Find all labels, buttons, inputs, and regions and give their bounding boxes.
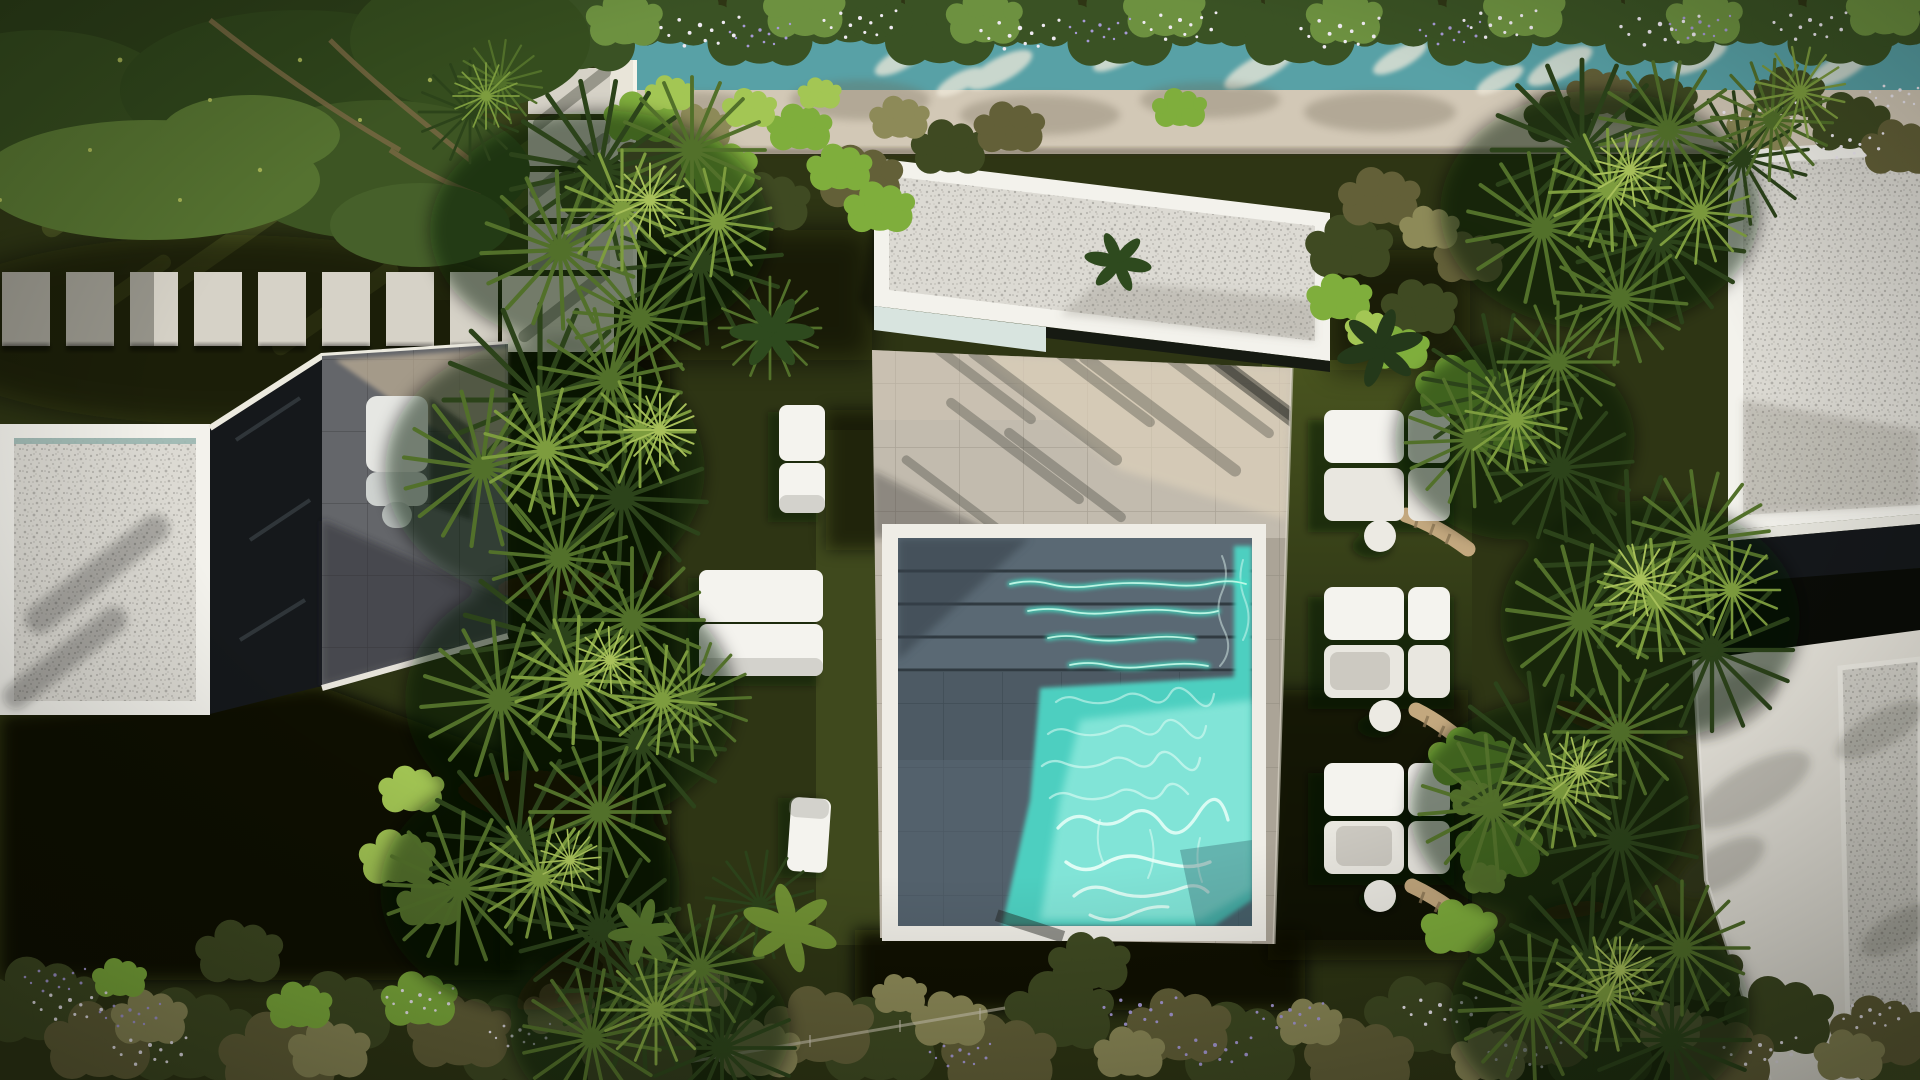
aerial-photo xyxy=(0,0,1920,1080)
vignette xyxy=(0,0,1920,1080)
aerial-photo-canvas xyxy=(0,0,1920,1080)
